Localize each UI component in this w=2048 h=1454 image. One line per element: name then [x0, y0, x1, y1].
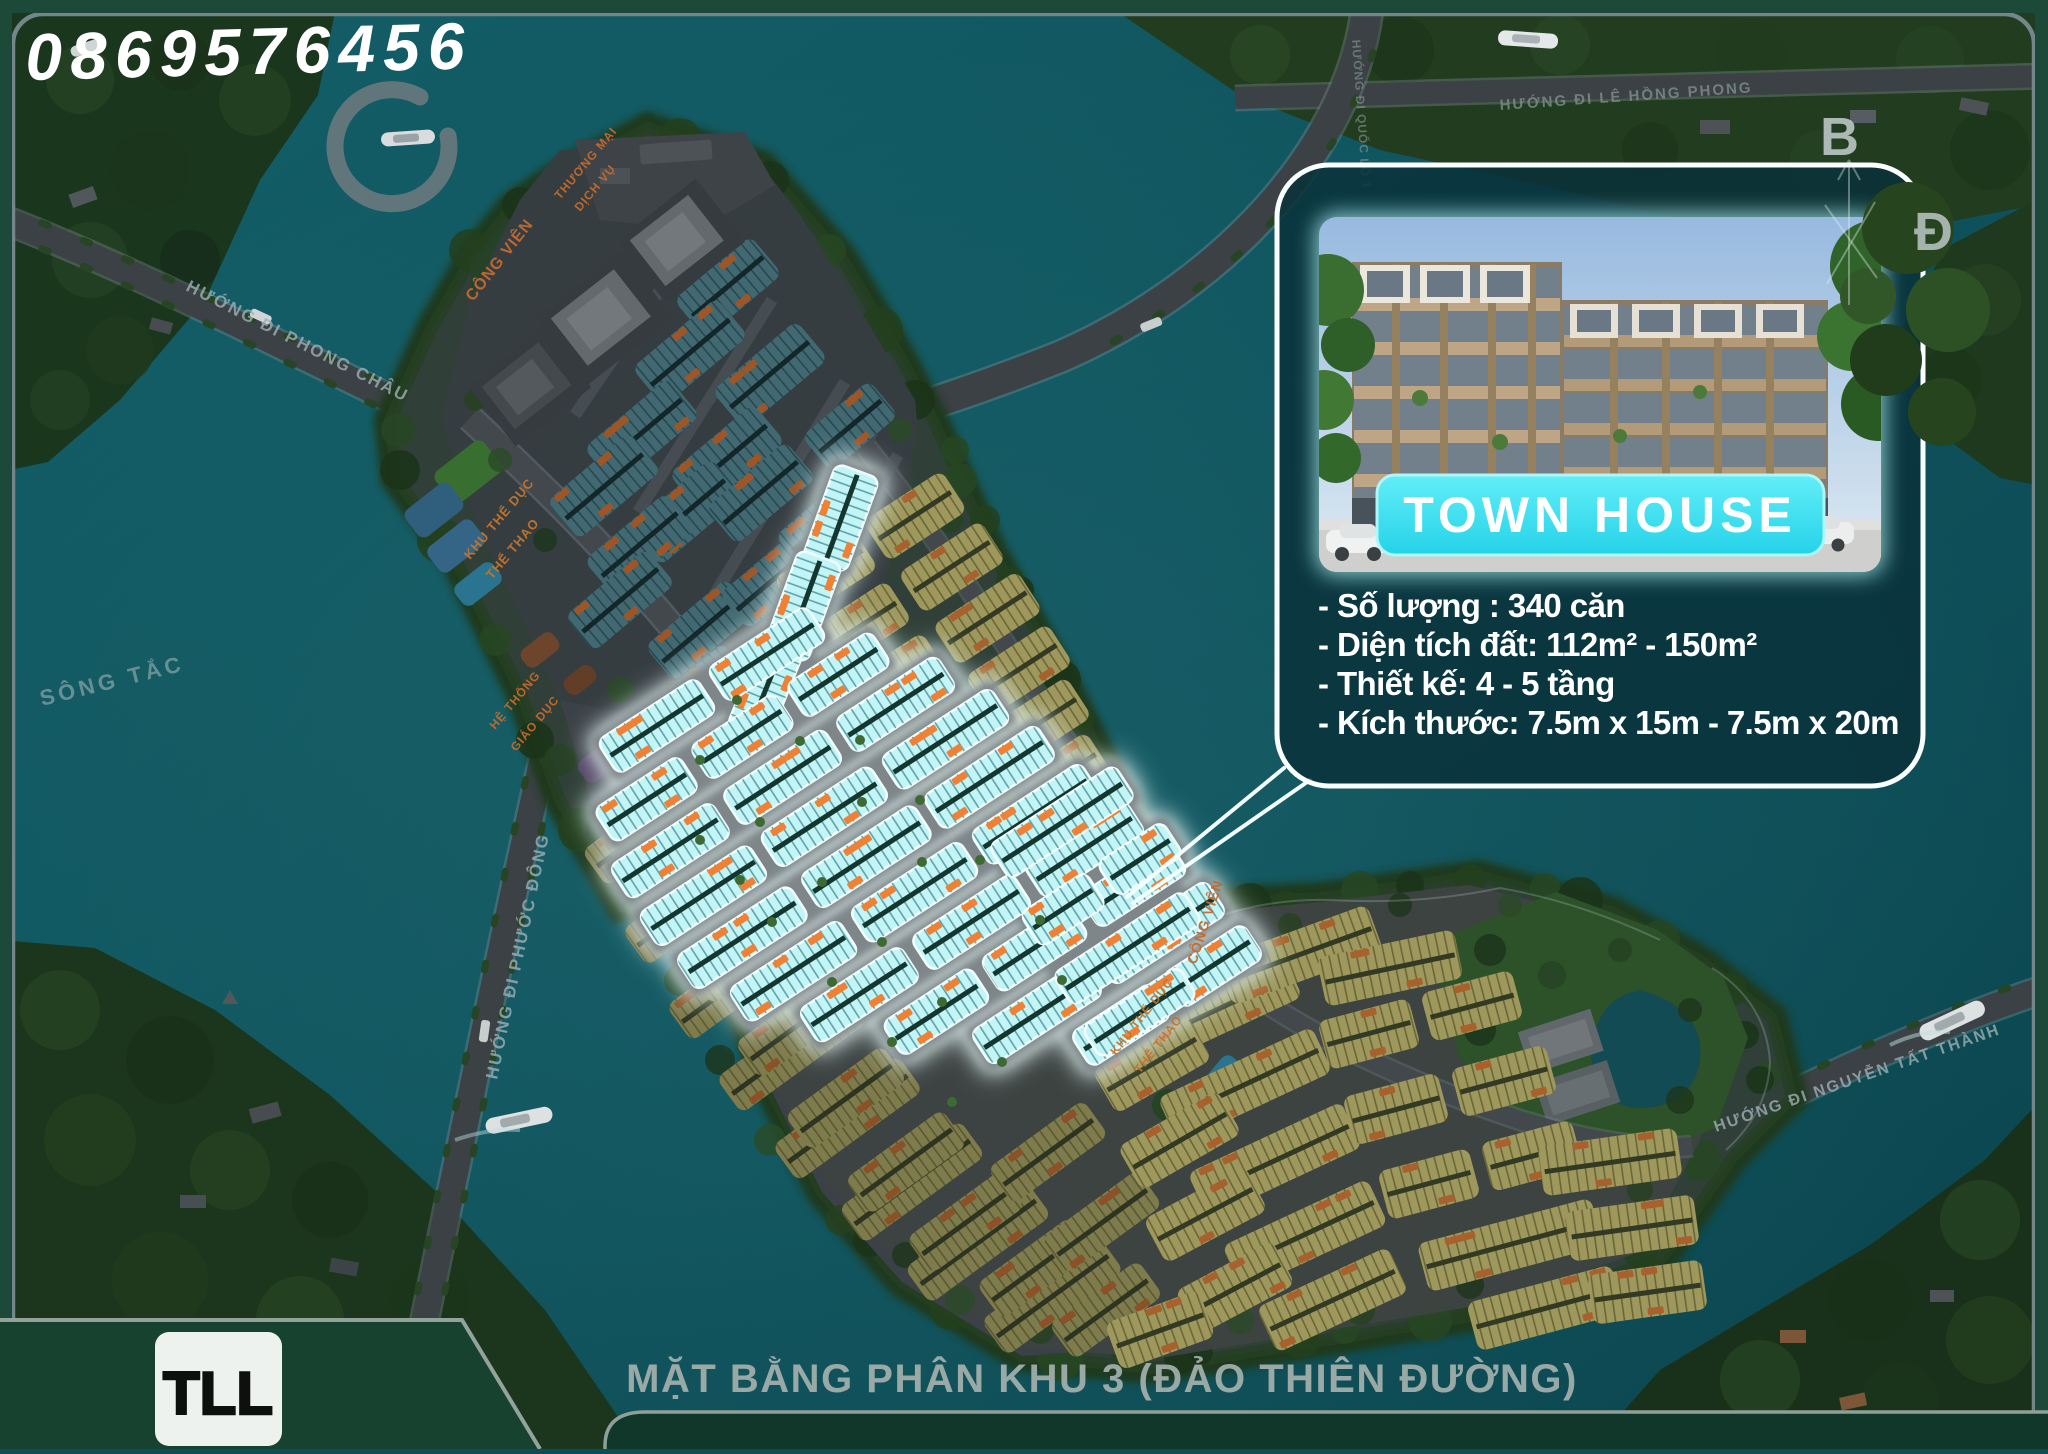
svg-text:Đ: Đ	[1914, 202, 1953, 262]
svg-text:TOWN HOUSE: TOWN HOUSE	[1403, 487, 1797, 543]
svg-text:MẶT BẰNG PHÂN KHU 3 (ĐẢO THIÊN: MẶT BẰNG PHÂN KHU 3 (ĐẢO THIÊN ĐƯỜNG)	[626, 1355, 1578, 1401]
svg-text:B: B	[1820, 107, 1859, 167]
svg-text:0869576456: 0869576456	[24, 8, 473, 94]
svg-text:- Kích thước: 7.5m x 15m - 7.5: - Kích thước: 7.5m x 15m - 7.5m x 20m	[1318, 704, 1899, 741]
svg-text:- Thiết kế: 4 - 5 tầng: - Thiết kế: 4 - 5 tầng	[1318, 665, 1615, 702]
svg-text:- Số lượng : 340 căn: - Số lượng : 340 căn	[1318, 587, 1625, 624]
svg-text:- Diện tích đất: 112m² - 150m²: - Diện tích đất: 112m² - 150m²	[1318, 626, 1757, 663]
svg-text:TLL: TLL	[163, 1360, 273, 1427]
